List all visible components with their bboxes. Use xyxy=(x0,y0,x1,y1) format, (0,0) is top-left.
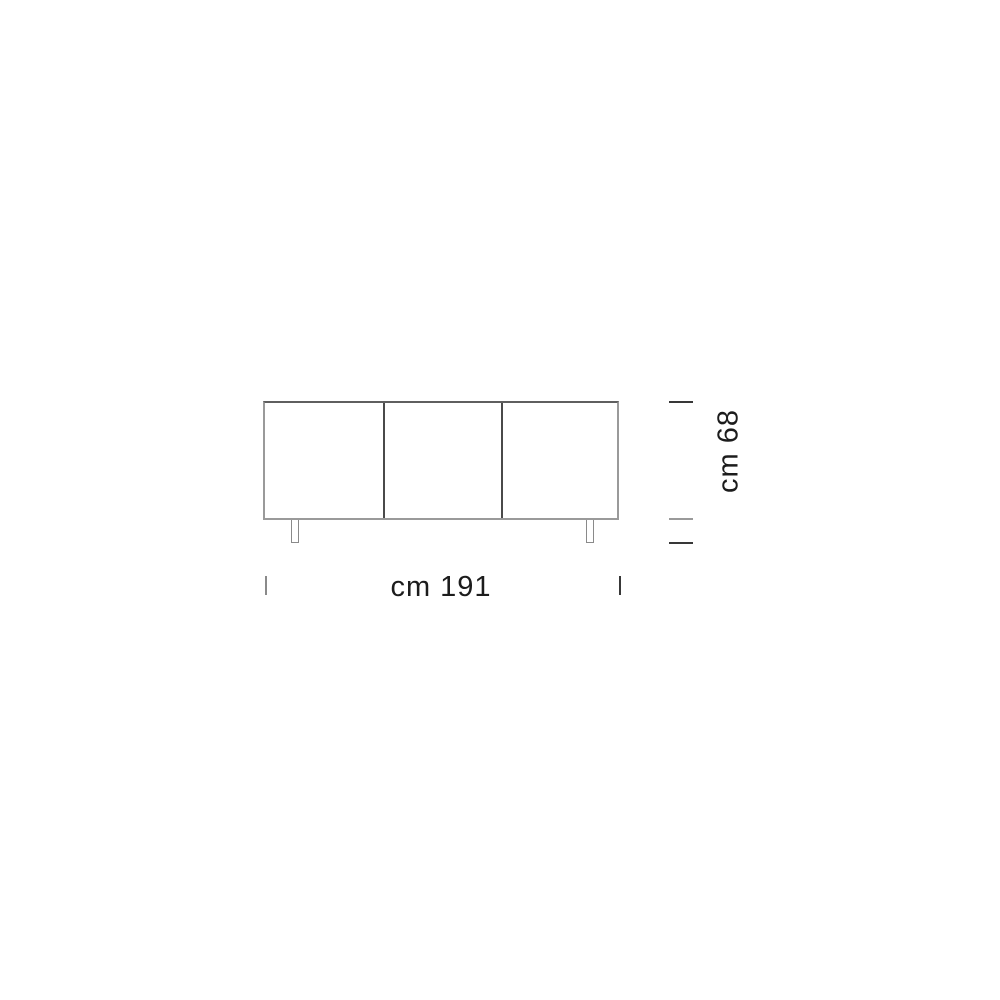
sideboard-leg-right xyxy=(586,520,594,543)
height-tick-leg-bottom xyxy=(669,542,693,544)
height-dimension-label: cm 68 xyxy=(713,409,746,493)
door-divider-left xyxy=(383,403,385,518)
width-dimension-label: cm 191 xyxy=(263,571,619,604)
dimension-diagram: cm 68 cm 191 xyxy=(0,0,1000,1000)
sideboard-outline xyxy=(263,401,619,520)
door-divider-right xyxy=(501,403,503,518)
height-tick-cabinet-bottom xyxy=(669,518,693,520)
height-tick-cabinet-top xyxy=(669,401,693,403)
width-tick-right xyxy=(619,576,621,595)
sideboard-leg-left xyxy=(291,520,299,543)
